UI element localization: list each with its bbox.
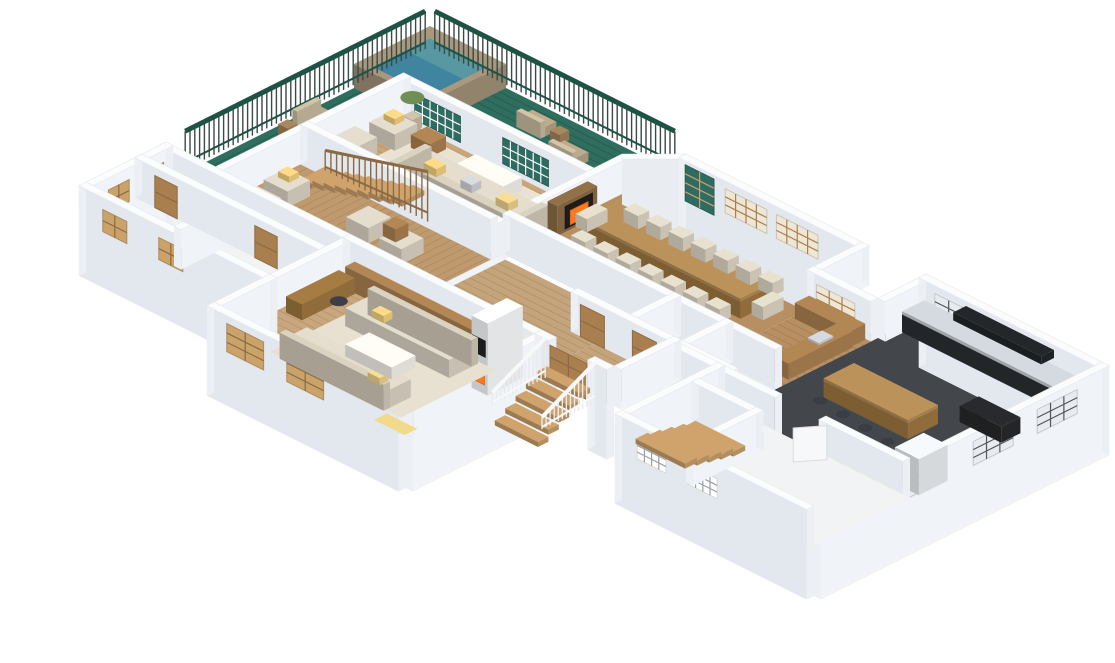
utility-open-door	[793, 426, 827, 462]
floorplan-image	[0, 0, 1115, 663]
potted-plant	[400, 91, 424, 104]
entry-south-wall-b	[588, 356, 614, 459]
office-chair	[330, 296, 348, 306]
floorplan-render	[0, 0, 1115, 663]
